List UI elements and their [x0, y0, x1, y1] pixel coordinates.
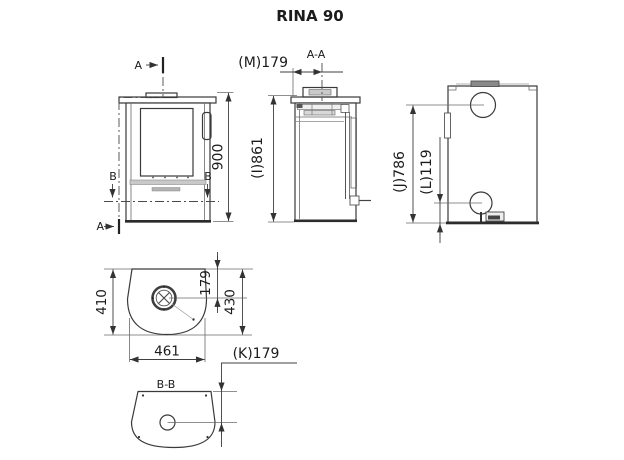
drawing-page: RINA 90 A A: [0, 0, 624, 460]
dim-410-label: 410: [94, 289, 110, 315]
back-view: (J)786 (L)119: [392, 81, 539, 243]
dim-i861-label: (I)861: [250, 137, 266, 179]
section-b-label-left: B: [109, 170, 117, 183]
section-b-label-right: B: [204, 170, 212, 183]
dim-k179-leader-line: [222, 363, 298, 447]
front-view: A A B B 900: [96, 57, 233, 234]
front-air-lever: [152, 188, 180, 192]
front-base-line: [125, 220, 211, 223]
dim-430-label: 430: [223, 289, 239, 315]
dim-461-label: 461: [154, 344, 180, 360]
aa-flue-collar-inner: [309, 90, 331, 96]
plan-hinge-point: [192, 318, 194, 320]
section-aa-view: (M)179 A-A (I)861: [238, 48, 371, 222]
dim-m179-label: (M)179: [238, 55, 288, 71]
dim-k179-label: (K)179: [233, 346, 280, 362]
bottom-bb-view: B-B (K)179: [132, 346, 298, 448]
dim-l119-label: (L)119: [419, 149, 435, 194]
back-base-line: [446, 222, 539, 225]
section-a-label-bottom: A: [96, 220, 104, 233]
front-trim-band: [130, 180, 206, 185]
dim-900-label: 900: [211, 144, 227, 171]
back-left-edge-bracket: [445, 113, 451, 138]
top-view: 410 179 430 461: [94, 252, 253, 362]
section-aa-label: A-A: [307, 48, 326, 61]
aa-top-plate: [291, 97, 360, 103]
dim-j786-label: (J)786: [392, 151, 408, 193]
dim-179-label: 179: [198, 270, 214, 296]
section-bb-label: B-B: [157, 378, 176, 391]
section-a-label-top: A: [134, 59, 142, 72]
aa-base-line: [294, 220, 357, 223]
technical-drawing: RINA 90 A A: [0, 0, 624, 460]
back-flue-collar-strip: [471, 81, 499, 87]
aa-door-bottom-edge: [350, 196, 359, 205]
front-body: [126, 103, 210, 222]
aa-body: [295, 103, 356, 221]
back-inlet-connector-bar: [488, 216, 500, 220]
page-title: RINA 90: [276, 7, 343, 25]
